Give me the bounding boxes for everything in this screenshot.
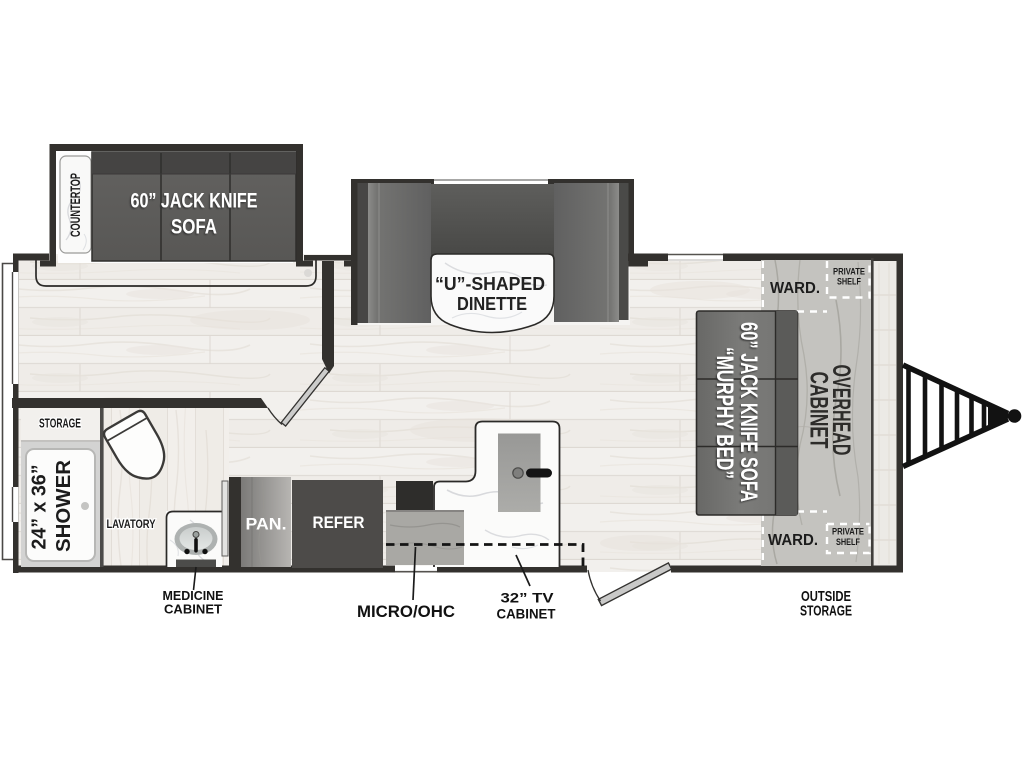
svg-text:PRIVATE: PRIVATE — [833, 267, 865, 277]
svg-text:COUNTERTOP: COUNTERTOP — [68, 173, 83, 237]
svg-text:REFER: REFER — [313, 513, 365, 532]
svg-text:60” JACK KNIFE SOFA: 60” JACK KNIFE SOFA — [735, 322, 762, 502]
svg-text:WARD.: WARD. — [768, 532, 818, 549]
svg-text:32” TV: 32” TV — [501, 590, 555, 606]
svg-text:WARD.: WARD. — [770, 280, 820, 297]
svg-text:CABINET: CABINET — [497, 606, 556, 622]
svg-text:PRIVATE: PRIVATE — [832, 527, 864, 537]
svg-text:“MURPHY BED”: “MURPHY BED” — [711, 347, 738, 479]
svg-text:SHOWER: SHOWER — [53, 459, 75, 552]
svg-text:SHELF: SHELF — [837, 277, 861, 287]
svg-text:SOFA: SOFA — [171, 216, 217, 239]
svg-text:“U”-SHAPED: “U”-SHAPED — [435, 273, 545, 294]
svg-text:MICRO/OHC: MICRO/OHC — [357, 602, 455, 621]
svg-text:24” x 36”: 24” x 36” — [29, 465, 51, 550]
svg-text:CABINET: CABINET — [164, 602, 222, 617]
svg-text:STORAGE: STORAGE — [800, 603, 852, 620]
svg-text:CABINET: CABINET — [805, 372, 833, 449]
svg-text:PAN.: PAN. — [246, 515, 287, 534]
svg-text:STORAGE: STORAGE — [39, 416, 81, 431]
svg-text:SHELF: SHELF — [836, 537, 860, 547]
svg-text:60” JACK KNIFE: 60” JACK KNIFE — [131, 190, 258, 213]
svg-text:DINETTE: DINETTE — [457, 293, 527, 314]
svg-text:LAVATORY: LAVATORY — [107, 517, 156, 531]
